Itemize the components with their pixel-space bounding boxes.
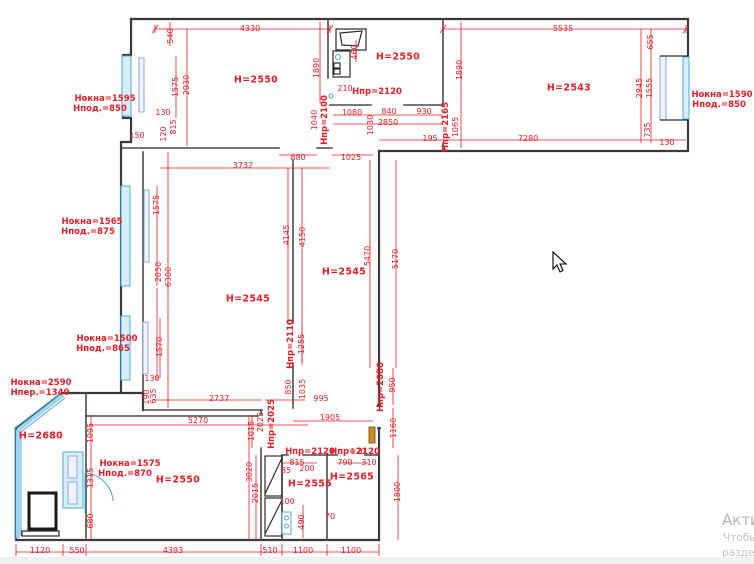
watermark-line-1: Актива [722,513,754,528]
dimension-label: 460 [351,44,359,59]
dimension-label: 1015 [248,421,256,441]
dimension-label: 930 [416,108,431,116]
dimension-label: 2930 [183,75,191,95]
dimension-label: 130 [155,109,170,117]
dimension-label: 7280 [518,135,538,143]
dimension-label: 200 [299,465,314,473]
dimension-label: 4393 [163,547,183,555]
dimension-label: 540 [167,28,175,43]
dimension-label: 1315 [87,468,95,488]
dimension-label: 995 [313,395,328,403]
window-size-label: Hпод.=875 [61,228,115,237]
dimension-label: 735 [644,122,652,137]
dimension-label: 490 [298,514,306,529]
door-height-label: Hпр=2080 [377,362,386,412]
dimension-label: 1255 [298,334,306,354]
dimension-label: 130 [144,375,159,383]
dimension-label: 4145 [283,225,291,245]
dimension-label: 4150 [299,227,307,247]
window-size-label: Нокна=2590 [10,379,71,388]
dimension-label: 1030 [367,115,375,135]
wardrobe-icon [265,456,282,536]
dimension-label: 1160 [390,418,398,438]
door-height-label: Hпр=2120 [330,448,380,457]
mouse-cursor [553,252,566,272]
room-height-label: H=2680 [19,431,63,441]
dimension-label: 210 [337,85,352,93]
dimension-label: 150 [129,132,144,140]
dimension-label: 310 [361,459,376,467]
window-size-label: Нокна=1575 [99,460,160,469]
dimension-label: 120 [160,126,168,141]
window-size-label: Hпод.=865 [76,345,130,354]
window-mid-left-icon [121,186,149,286]
radiator-icon [282,512,291,534]
window-size-label: Hпод.=850 [73,105,127,114]
dimension-label: 4330 [240,25,260,33]
dimension-label: 2737 [209,395,229,403]
door-height-label: Hпр=2110 [287,319,296,369]
dimension-label: 510 [262,547,277,555]
dimension-label: 2050 [155,262,163,282]
window-size-label: Нокна=1590 [691,91,752,100]
loggia-equipment-icon [22,493,59,536]
dimension-label: 70 [325,513,335,521]
dimension-label: 1905 [320,414,340,422]
dimension-label: 1575 [172,77,180,97]
room-height-label: H=2550 [156,475,200,485]
door-height-label: Hпр=2165 [442,102,451,152]
dimension-label: 635 [150,388,158,403]
dimension-label: 655 [647,34,655,49]
dimension-label: 6300 [165,267,173,287]
dimension-label: 2945 [636,78,644,98]
dimension-label: 1080 [342,109,362,117]
dimension-label: 1100 [341,547,361,555]
window-size-label: Hпер.=1340 [11,389,70,398]
room-height-label: H=2543 [547,83,591,93]
dimension-label: 1800 [394,482,402,502]
dimension-label: 1890 [456,60,464,80]
dimension-label: 3732 [233,162,253,170]
dimension-label: 5470 [364,246,372,266]
door-height-label: Hпр=2120 [352,88,402,97]
window-size-label: Hпод.=870 [98,470,152,479]
dimension-label: 2850 [378,119,398,127]
dimension-label: 85 [281,467,291,475]
window-size-label: Hпод.=850 [692,101,746,110]
dimension-label: 880 [290,154,305,162]
dimension-label: 130 [659,139,674,147]
window-size-label: Нокна=1595 [74,95,135,104]
dimension-label: 1100 [293,547,313,555]
window-size-label: Нокна=1565 [61,218,122,227]
dimension-label: 1095 [87,423,95,443]
door-height-label: Hпр=2025 [268,399,277,449]
dimension-label: 680 [87,513,95,528]
dimension-label: 1040 [311,110,319,130]
watermark-line-2: Чтобы ак [723,533,754,544]
dimension-label: 1570 [156,337,164,357]
dimension-label: 3020 [246,462,254,482]
cad-floor-plan-viewport[interactable]: 4330553554065515752930H=25501890460210H=… [0,0,754,564]
dimension-label: 840 [381,108,396,116]
dimension-label: 5270 [188,417,208,425]
dimension-label: 1555 [646,78,654,98]
door-height-label: Hпр=2100 [321,95,330,145]
dimension-label: 550 [69,547,84,555]
room-height-label: H=2550 [376,52,420,62]
dimension-label: 1120 [30,547,50,555]
room-height-label: H=2550 [234,75,278,85]
dimension-label: 5535 [553,25,573,33]
dimension-label: 100 [279,498,294,506]
room-height-label: H=2555 [288,479,332,489]
dimension-label: 850 [285,379,293,394]
dimension-label: 1890 [313,58,321,78]
dimension-label: 1035 [299,379,307,399]
room-height-label: H=2545 [226,294,270,304]
dimension-label: 790 [337,459,352,467]
dimension-label: 2025 [257,412,265,432]
room-height-label: H=2565 [330,472,374,482]
window-bottom-edge [0,557,754,564]
dimension-label: 5170 [392,249,400,269]
dimension-label: 815 [170,119,178,134]
dimension-label: 195 [422,135,437,143]
room-height-label: H=2545 [322,267,366,277]
dimension-label: 1025 [341,154,361,162]
window-size-label: Нокна=1500 [76,335,137,344]
dimension-label: 1575 [153,195,161,215]
window-right-icon [660,56,689,120]
dimension-label: 1065 [452,117,460,137]
dimension-label: 950 [389,377,397,392]
door-height-label: Hпр=2120 [285,448,335,457]
dimension-label: 2015 [252,483,260,503]
